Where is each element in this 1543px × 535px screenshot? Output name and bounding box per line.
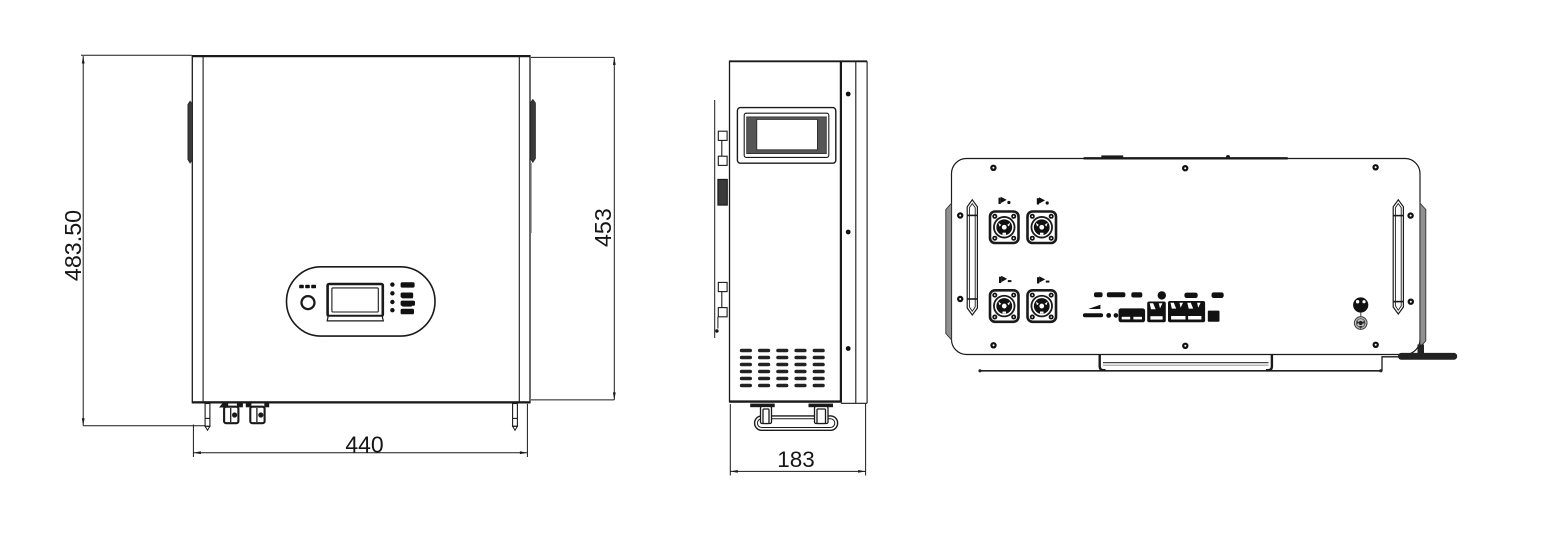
svg-text:440: 440 <box>345 431 383 457</box>
svg-text:483.50: 483.50 <box>60 210 86 281</box>
svg-text:453: 453 <box>590 208 616 247</box>
svg-text:183: 183 <box>777 447 815 472</box>
